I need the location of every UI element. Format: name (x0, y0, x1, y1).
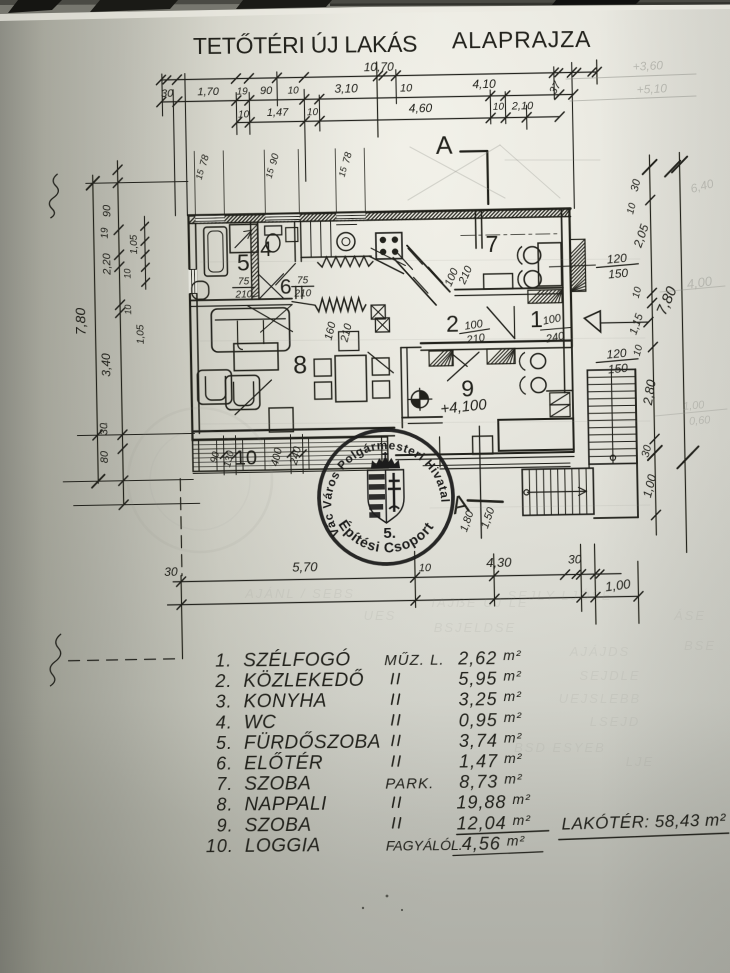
svg-text:6.: 6. (216, 753, 233, 773)
svg-text:120: 120 (606, 346, 628, 362)
svg-text:AJÁNL / SEBS: AJÁNL / SEBS (244, 586, 355, 601)
svg-text:SZÉLFOGÓ: SZÉLFOGÓ (243, 648, 351, 671)
svg-text:A: A (436, 132, 454, 160)
svg-text:3,10: 3,10 (334, 81, 358, 95)
svg-text:1: 1 (530, 306, 543, 332)
svg-text:3.: 3. (215, 692, 232, 712)
svg-text:KÖZLEKEDŐ: KÖZLEKEDŐ (243, 669, 364, 692)
svg-text:MŰZ. L.: MŰZ. L. (384, 652, 444, 670)
svg-text:4,30: 4,30 (486, 555, 512, 570)
svg-text:LSEJD: LSEJD (590, 714, 640, 729)
svg-text:2: 2 (446, 311, 459, 337)
svg-text:PARK.: PARK. (385, 775, 434, 792)
svg-text:KONYHA: KONYHA (243, 691, 326, 713)
svg-text:30: 30 (568, 552, 582, 566)
svg-text:5,70: 5,70 (292, 559, 318, 574)
svg-text:UEJSLEBB: UEJSLEBB (559, 691, 641, 706)
svg-text:BSE: BSE (684, 638, 716, 653)
svg-text:10: 10 (122, 269, 132, 279)
svg-text:3,40: 3,40 (99, 353, 113, 377)
svg-text:LOGGIA: LOGGIA (245, 835, 321, 857)
svg-text:AJÁJDS: AJÁJDS (569, 644, 630, 659)
svg-text:TETŐTÉRI ÚJ LAKÁS: TETŐTÉRI ÚJ LAKÁS (193, 31, 419, 59)
svg-text:ALAPRAJZA: ALAPRAJZA (452, 26, 592, 53)
svg-text:5: 5 (237, 249, 250, 275)
svg-text:UES: UES (364, 608, 397, 623)
svg-text:4.: 4. (216, 712, 233, 732)
svg-text:5.: 5. (216, 733, 233, 753)
svg-text:8: 8 (293, 351, 307, 379)
svg-text:30: 30 (98, 422, 110, 435)
svg-text:4: 4 (260, 238, 272, 261)
svg-text:FÜRDŐSZOBA: FÜRDŐSZOBA (244, 731, 381, 754)
svg-text:1,00: 1,00 (683, 399, 706, 413)
svg-text:SZOBA: SZOBA (244, 773, 311, 795)
svg-text:SZOBA: SZOBA (245, 815, 312, 837)
svg-text:1,05: 1,05 (129, 234, 140, 254)
svg-text:150: 150 (608, 266, 630, 282)
svg-text:7.: 7. (216, 774, 233, 794)
svg-text:90: 90 (101, 204, 113, 217)
svg-text:75: 75 (238, 276, 250, 287)
svg-text:19: 19 (100, 227, 111, 239)
svg-text:10.: 10. (206, 836, 234, 856)
svg-text:4,60: 4,60 (409, 101, 433, 115)
svg-text:210: 210 (234, 289, 252, 300)
svg-text:BSJELDSE: BSJELDSE (434, 620, 516, 635)
svg-text:10: 10 (400, 82, 413, 94)
svg-text:8.: 8. (216, 795, 233, 815)
svg-text:1,05: 1,05 (135, 324, 146, 344)
svg-text:SEJLY LJÓSE: SEJLY LJÓSE (507, 588, 612, 603)
svg-text:SEJDLE: SEJDLE (579, 668, 640, 683)
svg-text:150: 150 (607, 361, 629, 377)
svg-text:FAGYÁLÓL.: FAGYÁLÓL. (386, 837, 463, 854)
svg-text:BSD ESYEB: BSD ESYEB (514, 740, 606, 755)
svg-text:4,10: 4,10 (472, 77, 496, 91)
svg-text:+5,10: +5,10 (636, 81, 667, 97)
svg-text:1.: 1. (215, 650, 232, 670)
svg-text:80: 80 (99, 450, 111, 463)
svg-text:30: 30 (164, 565, 178, 579)
svg-text:10: 10 (238, 109, 250, 120)
svg-text:10: 10 (493, 102, 505, 113)
svg-text:LJE: LJE (626, 754, 654, 769)
svg-text:5.: 5. (383, 525, 396, 542)
svg-text:10: 10 (419, 562, 432, 574)
svg-text:10: 10 (287, 85, 299, 96)
svg-text:WC: WC (244, 712, 277, 733)
svg-text:2.: 2. (214, 671, 232, 691)
svg-text:210: 210 (293, 288, 311, 299)
svg-text:2,10: 2,10 (511, 100, 535, 112)
svg-text:ELŐTÉR: ELŐTÉR (244, 752, 323, 775)
svg-text:90: 90 (260, 85, 273, 97)
svg-text:19: 19 (237, 86, 249, 97)
svg-text:+3,60: +3,60 (632, 58, 663, 74)
svg-text:ÁSE: ÁSE (673, 608, 706, 623)
svg-text:1,70: 1,70 (197, 86, 220, 98)
svg-text:7,80: 7,80 (72, 308, 89, 336)
svg-text:0,60: 0,60 (689, 414, 712, 428)
svg-text:2,20: 2,20 (101, 252, 113, 276)
svg-text:75: 75 (297, 275, 309, 286)
svg-text:1,47: 1,47 (267, 107, 290, 119)
svg-text:10: 10 (123, 305, 133, 315)
svg-text:7: 7 (485, 231, 498, 257)
svg-text:9.: 9. (217, 815, 234, 835)
svg-text:10: 10 (307, 107, 319, 118)
svg-text:NAPPALI: NAPPALI (244, 794, 327, 816)
svg-text:10,70: 10,70 (364, 60, 395, 75)
svg-text:30: 30 (161, 88, 174, 100)
